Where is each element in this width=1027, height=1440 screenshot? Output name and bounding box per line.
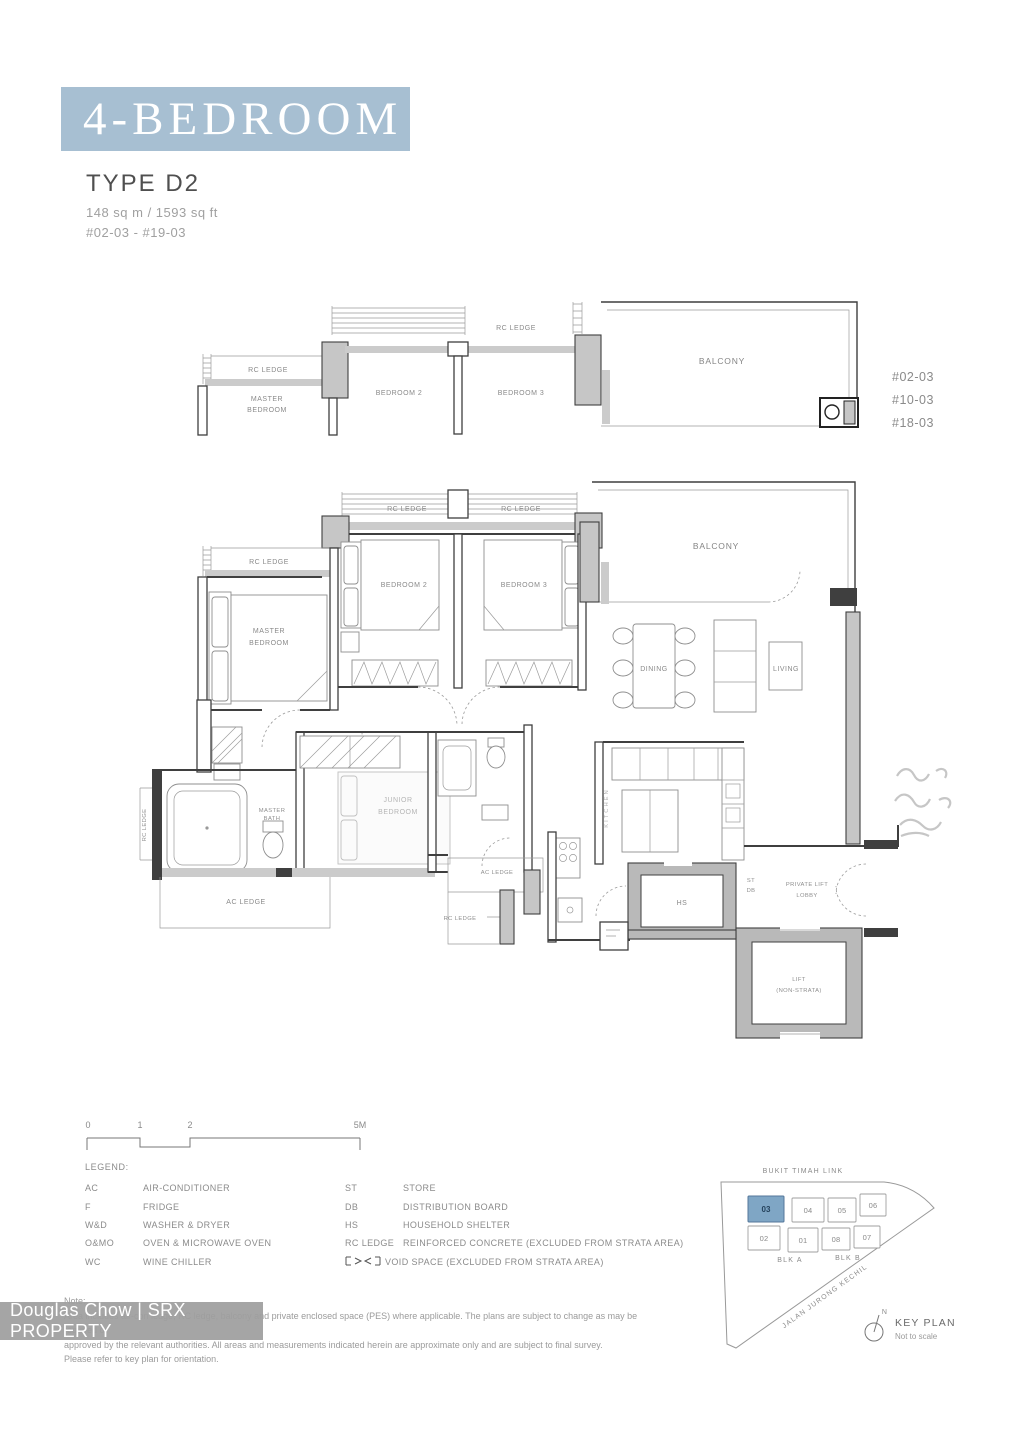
ac-ledge-label: AC LEDGE	[481, 870, 514, 876]
junior-wardrobe-hatch	[300, 736, 400, 768]
door-swing-arc	[462, 687, 500, 725]
legend-row: F FRIDGE	[85, 1197, 271, 1215]
shower-icon	[438, 740, 476, 796]
svg-text:BEDROOM: BEDROOM	[247, 407, 287, 414]
private-lift-lobby-label: PRIVATE LIFT	[786, 882, 828, 888]
living-label: LIVING	[773, 666, 799, 673]
rc-ledge-label: RC LEDGE	[501, 506, 541, 513]
legend-desc: VOID SPACE (EXCLUDED FROM STRATA AREA)	[385, 1257, 604, 1267]
scale-tick-5m: 5M	[354, 1120, 367, 1130]
hs-label: HS	[677, 900, 688, 907]
unit-area: 148 sq m / 1593 sq ft	[86, 205, 218, 220]
bathtub-icon	[167, 784, 247, 872]
banner-title: 4-BEDROOM	[83, 92, 402, 146]
bedroom3-label: BEDROOM 3	[498, 390, 545, 397]
ac-ledge-label: AC LEDGE	[226, 899, 265, 906]
bedroom3-furniture	[484, 540, 582, 686]
road-label-diagonal: JALAN JURONG KECHIL	[781, 1264, 869, 1330]
block-number: 07	[863, 1233, 872, 1242]
door-swing-arc	[482, 838, 510, 866]
legend-abbr: AC	[85, 1183, 143, 1193]
watermark-text: Douglas Chow | SRX PROPERTY	[10, 1300, 263, 1342]
road-label-top: BUKIT TIMAH LINK	[763, 1168, 844, 1175]
legend-row: W&D WASHER & DRYER	[85, 1216, 271, 1234]
door-swing-arc	[596, 886, 626, 916]
north-compass-icon: N	[865, 1309, 888, 1341]
master-bedroom-label: MASTER	[251, 396, 283, 403]
rc-ledge-label: RC LEDGE	[496, 325, 536, 332]
scale-tick-2: 2	[187, 1120, 192, 1130]
stack-unit-number: #02-03	[892, 370, 934, 384]
master-bed-furniture	[209, 592, 327, 704]
keyplan-subtitle: Not to scale	[895, 1332, 938, 1341]
legend-right-column: ST STORE DB DISTRIBUTION BOARD HS HOUSEH…	[345, 1179, 684, 1271]
legend-row-void: VOID SPACE (EXCLUDED FROM STRATA AREA)	[345, 1253, 684, 1271]
bedroom3-label: BEDROOM 3	[501, 582, 548, 589]
wardrobe-hatch	[212, 727, 242, 780]
legend-title: LEGEND:	[85, 1162, 129, 1172]
db-label: DB	[747, 888, 756, 894]
legend-row: ST STORE	[345, 1179, 684, 1197]
bedroom2-label: BEDROOM 2	[376, 390, 423, 397]
door-swing-arc	[262, 710, 300, 748]
unit-info: TYPE D2 148 sq m / 1593 sq ft #02-03 - #…	[86, 170, 218, 240]
door-swing-arc	[418, 687, 457, 726]
floor-plan-drawing: RC LEDGE MASTER BEDROOM RC LEDGE BEDROOM…	[0, 280, 1027, 1140]
tv-console-furniture	[714, 620, 756, 712]
block-number: 06	[869, 1201, 878, 1210]
handwritten-scribble-annotation	[895, 769, 950, 836]
svg-text:LOBBY: LOBBY	[796, 893, 817, 899]
bedroom-type-banner: 4-BEDROOM	[61, 87, 410, 151]
balcony-label: BALCONY	[693, 541, 739, 551]
bedroom2-label: BEDROOM 2	[381, 582, 428, 589]
block-number: 04	[804, 1206, 813, 1215]
unit-type-title: TYPE D2	[86, 170, 218, 198]
legend-row: O&MO OVEN & MICROWAVE OVEN	[85, 1234, 271, 1252]
legend-left-column: AC AIR-CONDITIONER F FRIDGE W&D WASHER &…	[85, 1179, 271, 1271]
block-number: 03	[762, 1205, 771, 1214]
stack-unit-number: #10-03	[892, 393, 934, 407]
svg-text:BEDROOM: BEDROOM	[249, 640, 289, 647]
legend-row: DB DISTRIBUTION BOARD	[345, 1197, 684, 1215]
block-number: 01	[799, 1236, 808, 1245]
agent-watermark: Douglas Chow | SRX PROPERTY	[0, 1302, 263, 1340]
toilet-icon	[263, 821, 283, 858]
svg-text:BEDROOM: BEDROOM	[378, 809, 418, 816]
block-number: 02	[760, 1234, 769, 1243]
door-swing-arc	[836, 864, 866, 916]
rc-ledge-label-vertical: RC LEDGE	[142, 809, 148, 842]
scale-tick-1: 1	[137, 1120, 142, 1130]
ac-unit-icon	[820, 398, 858, 427]
rc-ledge-label: RC LEDGE	[249, 559, 289, 566]
key-plan: BUKIT TIMAH LINK JALAN JURONG KECHIL 03 …	[698, 1148, 1027, 1383]
junior-bedroom-label: JUNIOR	[383, 797, 412, 804]
svg-text:(NON-STRATA): (NON-STRATA)	[776, 988, 821, 994]
bedroom2-furniture	[341, 540, 439, 686]
blk-b-label: BLK B	[835, 1255, 861, 1262]
st-label: ST	[747, 878, 755, 884]
unit-stack-range: #02-03 - #19-03	[86, 225, 218, 240]
louvre-fins	[332, 306, 465, 335]
scale-tick-0: 0	[85, 1120, 90, 1130]
svg-text:BATH: BATH	[264, 816, 281, 822]
master-bedroom-label: MASTER	[253, 628, 285, 635]
scale-bar: 0 1 2 5M	[80, 1118, 380, 1156]
door-swing-arc	[768, 570, 800, 602]
legend-row: RC LEDGE REINFORCED CONCRETE (EXCLUDED F…	[345, 1234, 684, 1252]
legend-desc: AIR-CONDITIONER	[143, 1183, 230, 1193]
block-number: 05	[838, 1206, 847, 1215]
basin-icon	[482, 805, 508, 820]
kitchen-counters	[612, 748, 744, 860]
lift-label: LIFT	[792, 977, 806, 983]
rc-ledge-label: RC LEDGE	[444, 916, 477, 922]
kitchen-label-vertical: KITCHEN	[604, 788, 610, 827]
rc-ledge-label: RC LEDGE	[248, 367, 288, 374]
keyplan-title: KEY PLAN	[895, 1317, 956, 1329]
main-floor-plan: RC LEDGE RC LEDGE RC LEDGE MASTER BEDROO…	[140, 482, 898, 1040]
blk-a-label: BLK A	[777, 1257, 802, 1264]
block-number: 08	[832, 1235, 841, 1244]
dining-label: DINING	[640, 666, 668, 673]
sink-icon	[558, 898, 582, 922]
void-space-symbol	[345, 1255, 385, 1269]
legend-row: AC AIR-CONDITIONER	[85, 1179, 271, 1197]
upper-floor-partial-plan: RC LEDGE MASTER BEDROOM RC LEDGE BEDROOM…	[198, 302, 934, 435]
legend-row: HS HOUSEHOLD SHELTER	[345, 1216, 684, 1234]
floorplan-brochure-page: 4-BEDROOM TYPE D2 148 sq m / 1593 sq ft …	[0, 0, 1027, 1440]
rc-ledge-label: RC LEDGE	[387, 506, 427, 513]
cooktop-icon	[556, 838, 580, 878]
balcony-label: BALCONY	[699, 356, 745, 366]
svg-text:N: N	[882, 1309, 888, 1316]
legend-row: WC WINE CHILLER	[85, 1253, 271, 1271]
toilet-icon	[487, 738, 505, 768]
stack-unit-number: #18-03	[892, 416, 934, 430]
master-bath-label: MASTER	[259, 808, 286, 814]
